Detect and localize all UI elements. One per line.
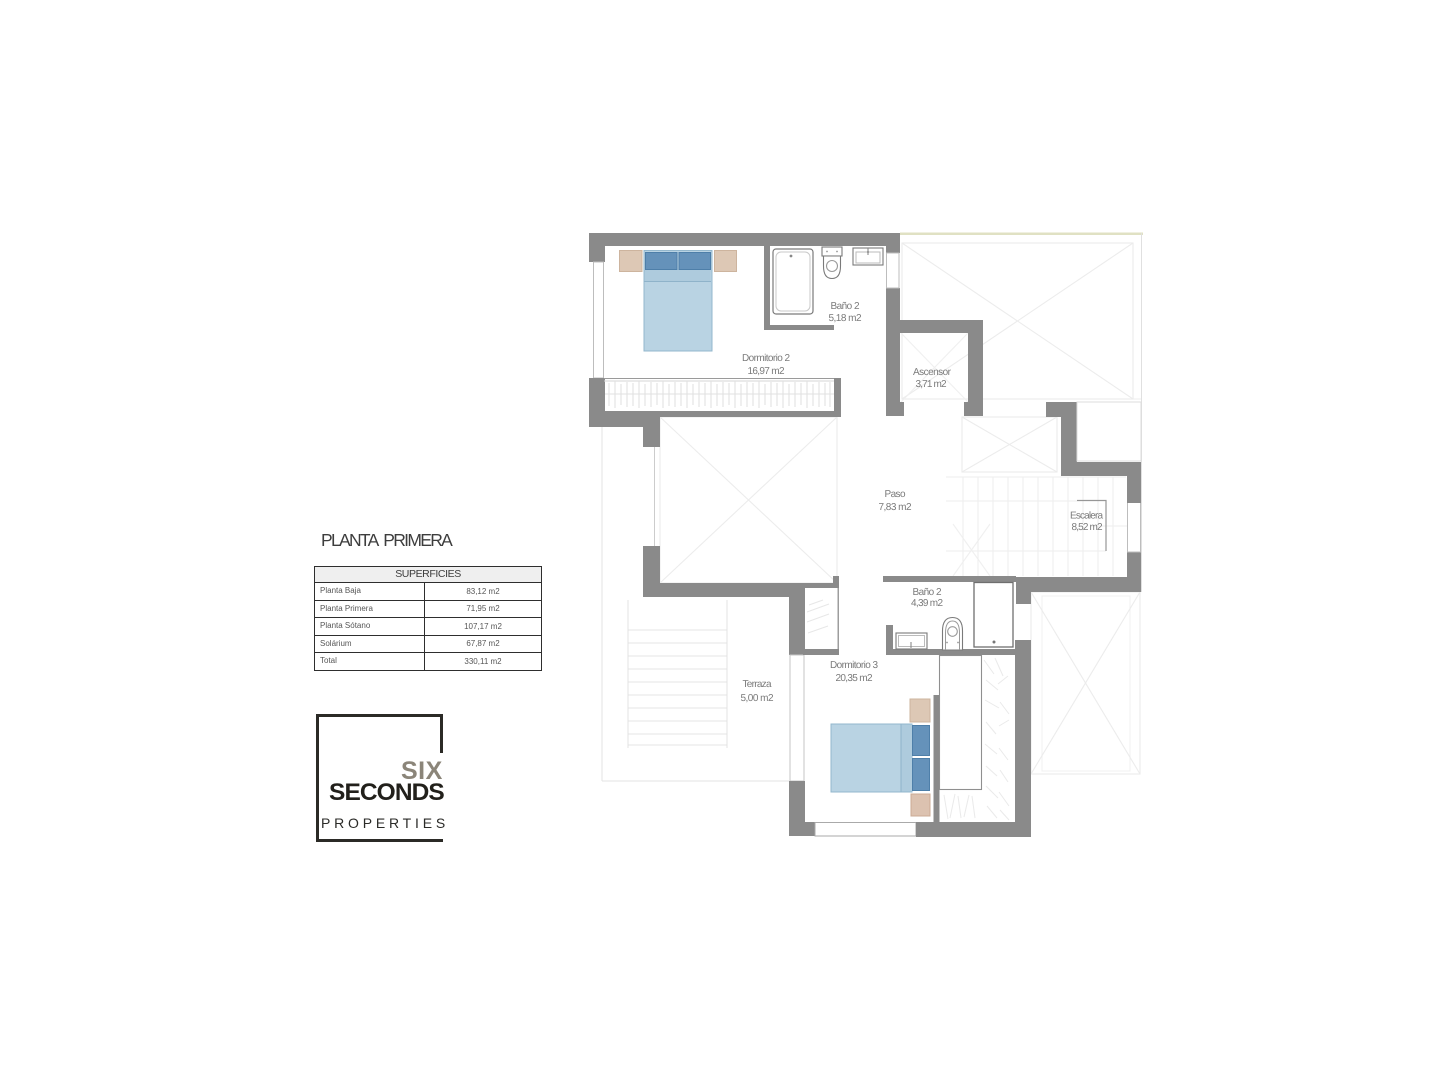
svg-text:8,52 m2: 8,52 m2 — [1072, 522, 1103, 533]
svg-text:Terraza: Terraza — [743, 679, 772, 690]
svg-text:5,18 m2: 5,18 m2 — [829, 313, 862, 324]
svg-text:20,35 m2: 20,35 m2 — [836, 673, 873, 684]
svg-text:7,83 m2: 7,83 m2 — [879, 502, 912, 513]
svg-text:16,97 m2: 16,97 m2 — [748, 366, 785, 377]
svg-text:Baño 2: Baño 2 — [831, 301, 860, 312]
svg-text:Dormitorio 2: Dormitorio 2 — [742, 353, 790, 364]
svg-text:5,00 m2: 5,00 m2 — [741, 693, 774, 704]
svg-text:Ascensor: Ascensor — [913, 367, 952, 378]
svg-text:Paso: Paso — [885, 489, 906, 500]
svg-text:Baño 2: Baño 2 — [913, 587, 942, 598]
svg-text:Escalera: Escalera — [1070, 511, 1103, 522]
svg-text:Dormitorio 3: Dormitorio 3 — [830, 660, 878, 671]
svg-text:3,71 m2: 3,71 m2 — [916, 379, 947, 390]
svg-text:4,39 m2: 4,39 m2 — [911, 598, 943, 609]
